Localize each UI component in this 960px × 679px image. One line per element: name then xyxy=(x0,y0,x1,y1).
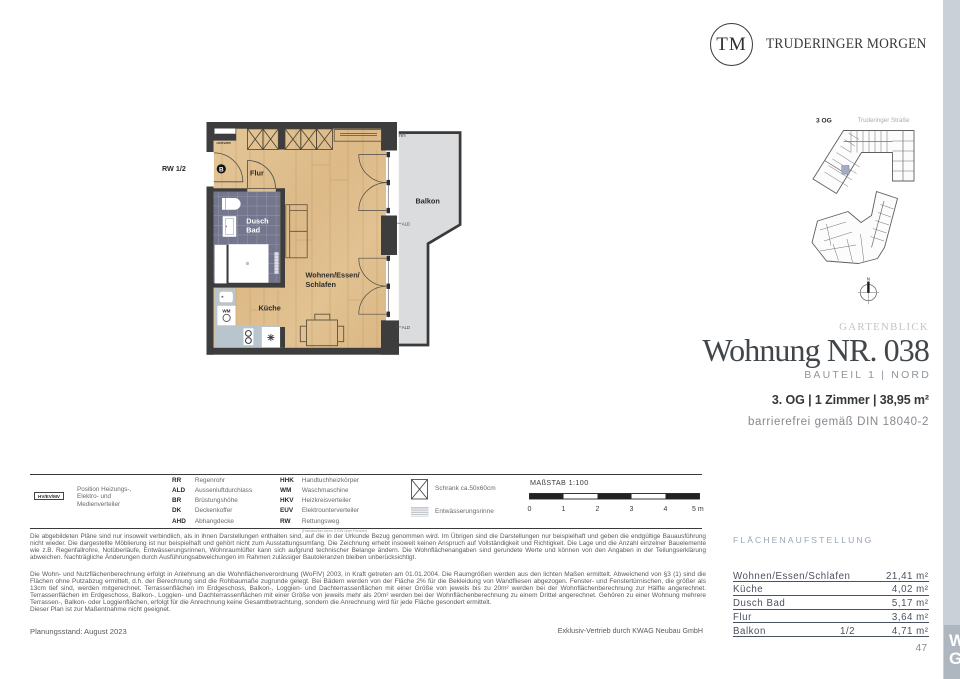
svg-text:Flur: Flur xyxy=(250,169,264,178)
svg-text:WM: WM xyxy=(222,308,230,313)
svg-text:Küche: Küche xyxy=(259,304,281,313)
svg-text:Truderinger Straße: Truderinger Straße xyxy=(858,117,911,124)
svg-text:N: N xyxy=(867,276,870,281)
svg-text:Dusch: Dusch xyxy=(246,216,268,225)
svg-text:ALD: ALD xyxy=(402,325,410,330)
svg-text:B: B xyxy=(219,166,224,173)
svg-text:ALD: ALD xyxy=(402,221,410,226)
svg-text:Bad: Bad xyxy=(246,225,260,234)
svg-text:3 OG: 3 OG xyxy=(816,117,832,124)
svg-text:Balkon: Balkon xyxy=(416,197,440,206)
svg-text:HH: HH xyxy=(399,133,407,139)
svg-text:Schlafen: Schlafen xyxy=(306,280,336,289)
svg-text:Wohnen/Essen/: Wohnen/Essen/ xyxy=(306,270,360,279)
svg-text:HV/EV/MV: HV/EV/MV xyxy=(217,141,231,145)
